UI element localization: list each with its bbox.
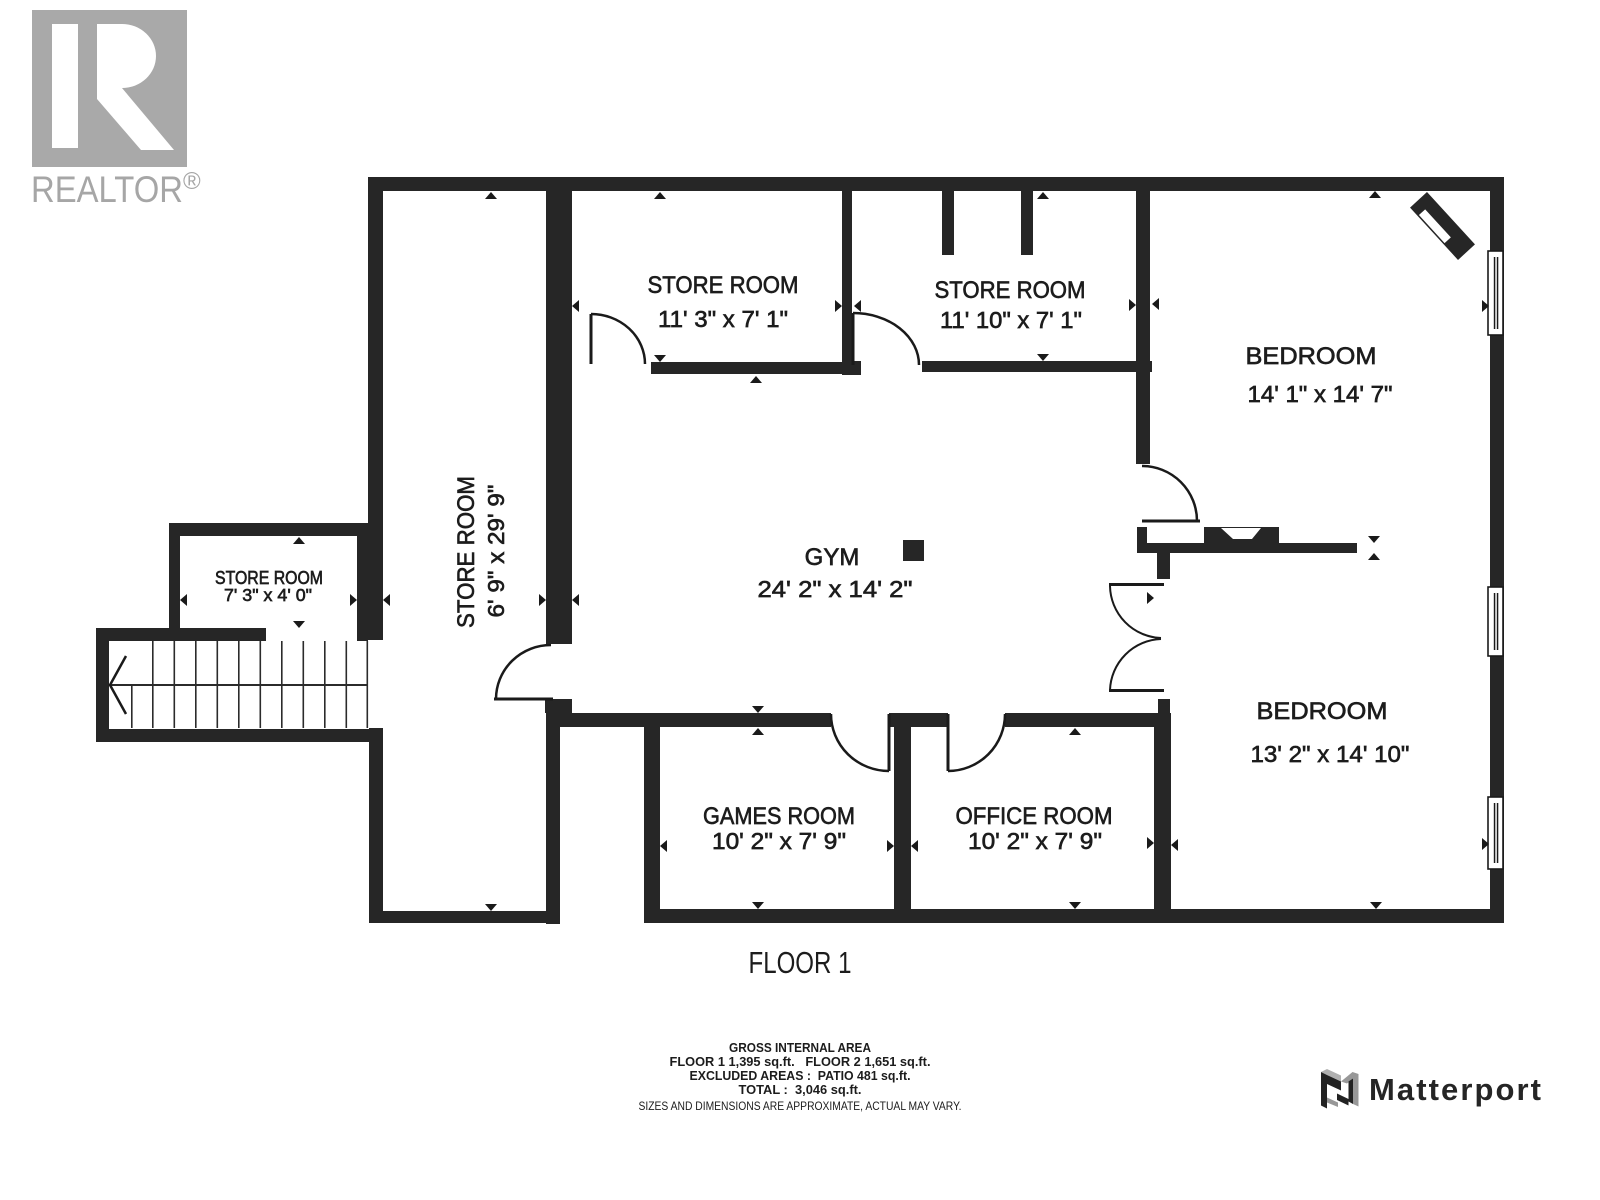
svg-text:6' 9" x 29' 9": 6' 9" x 29' 9" — [483, 485, 509, 618]
svg-text:11' 3" x 7' 1": 11' 3" x 7' 1" — [658, 306, 788, 332]
svg-text:STORE ROOM: STORE ROOM — [453, 476, 480, 628]
svg-text:TOTAL : 3,046 sq.ft.: TOTAL : 3,046 sq.ft. — [739, 1082, 862, 1097]
svg-text:SIZES AND DIMENSIONS ARE APPRO: SIZES AND DIMENSIONS ARE APPROXIMATE, AC… — [639, 1099, 962, 1113]
svg-text:STORE ROOM: STORE ROOM — [935, 277, 1086, 304]
svg-text:Matterport: Matterport — [1369, 1072, 1541, 1107]
svg-text:13' 2" x 14' 10": 13' 2" x 14' 10" — [1251, 741, 1410, 767]
svg-text:FLOOR 1: FLOOR 1 — [749, 945, 852, 980]
svg-text:10' 2" x 7' 9": 10' 2" x 7' 9" — [712, 828, 846, 854]
svg-text:BEDROOM: BEDROOM — [1257, 698, 1388, 725]
svg-text:EXCLUDED AREAS : PATIO 481 sq: EXCLUDED AREAS : PATIO 481 sq.ft. — [690, 1068, 911, 1083]
svg-text:BEDROOM: BEDROOM — [1246, 343, 1377, 370]
svg-text:GAMES ROOM: GAMES ROOM — [703, 803, 855, 830]
svg-text:14' 1" x 14' 7": 14' 1" x 14' 7" — [1248, 381, 1393, 407]
svg-text:11' 10" x 7' 1": 11' 10" x 7' 1" — [940, 307, 1082, 333]
svg-text:GROSS INTERNAL AREA: GROSS INTERNAL AREA — [729, 1040, 872, 1055]
svg-text:STORE ROOM: STORE ROOM — [648, 272, 799, 299]
svg-text:OFFICE ROOM: OFFICE ROOM — [956, 803, 1113, 830]
svg-text:REALTOR: REALTOR — [31, 169, 183, 210]
svg-text:FLOOR 1 1,395 sq.ft. FLOOR 2: FLOOR 1 1,395 sq.ft. FLOOR 2 1,651 sq.ft… — [670, 1054, 931, 1069]
svg-text:®: ® — [183, 168, 201, 195]
svg-text:24' 2" x 14' 2": 24' 2" x 14' 2" — [758, 576, 913, 602]
svg-text:10' 2" x 7' 9": 10' 2" x 7' 9" — [968, 828, 1102, 854]
svg-text:7' 3" x 4' 0": 7' 3" x 4' 0" — [224, 585, 312, 605]
svg-text:GYM: GYM — [805, 544, 860, 571]
